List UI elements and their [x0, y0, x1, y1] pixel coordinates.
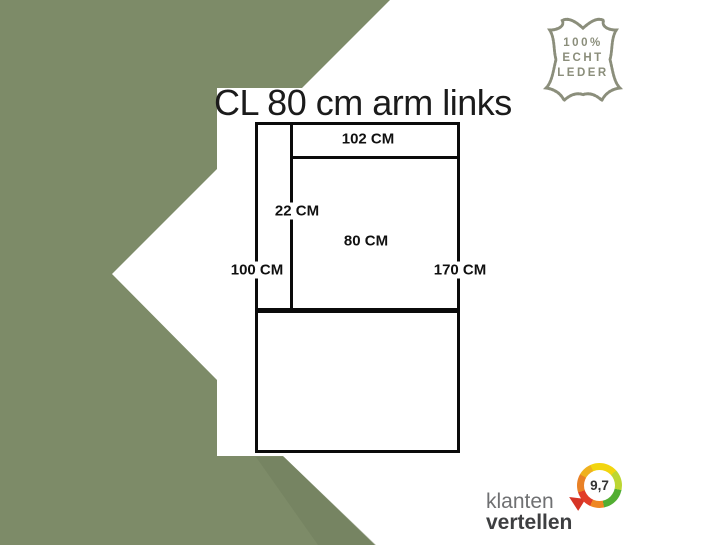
rating-score: 9,7 — [590, 478, 609, 493]
rating-score-badge: 9,7 — [584, 470, 615, 501]
product-dimension-card: CL 80 cm arm links 100% ECHT LEDER 102 C… — [0, 0, 726, 545]
dim-back-width: 102 CM — [342, 131, 395, 148]
leather-badge-text: 100% ECHT LEDER — [538, 36, 628, 81]
badge-line-leder: LEDER — [538, 66, 628, 81]
sofa-seat-split-line — [255, 308, 459, 313]
badge-line-echt: ECHT — [538, 51, 628, 66]
dim-seat-width: 80 CM — [344, 233, 388, 250]
page-title: CL 80 cm arm links — [214, 82, 512, 124]
review-brand: klanten vertellen — [486, 491, 572, 533]
review-brand-line2: vertellen — [486, 512, 572, 533]
dim-arm-width: 22 CM — [272, 203, 322, 220]
badge-line-percent: 100% — [538, 36, 628, 51]
rating-ring-icon: 9,7 — [577, 463, 622, 508]
dim-depth-right: 170 CM — [431, 262, 490, 279]
review-brand-line1: klanten — [486, 491, 572, 512]
review-widget: klanten vertellen 9,7 — [484, 461, 654, 541]
dim-height-left: 100 CM — [228, 262, 287, 279]
